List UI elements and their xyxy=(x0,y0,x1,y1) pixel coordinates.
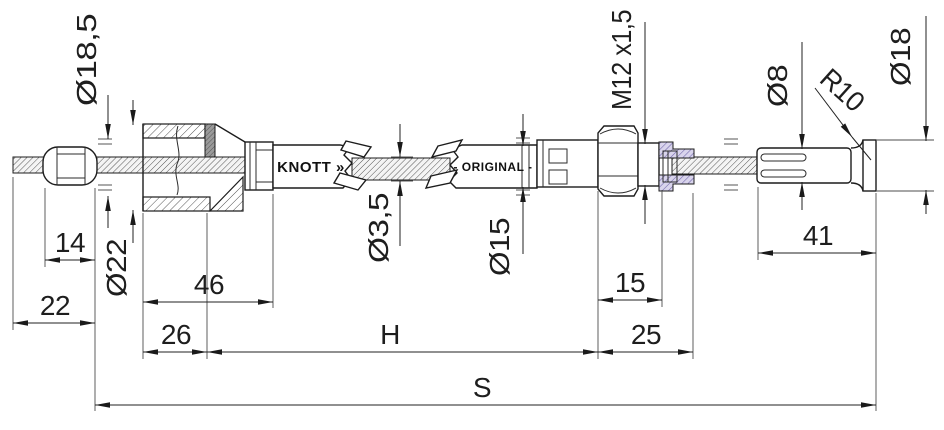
dim-label-46: 46 xyxy=(194,269,224,300)
dim-label-14: 14 xyxy=(55,227,85,258)
dim-label-41: 41 xyxy=(803,220,833,251)
dim-label-d22: Ø22 xyxy=(101,239,132,297)
dim-label-H: H xyxy=(380,319,400,350)
hex-nut xyxy=(598,126,638,196)
dim-label-d3-5: Ø3,5 xyxy=(363,193,394,263)
cable-end-nipple xyxy=(43,147,97,185)
dim-label-25: 25 xyxy=(631,319,661,350)
housing-cone-wall xyxy=(210,177,243,211)
nipple-body xyxy=(43,147,97,185)
dim-label-d18: Ø18 xyxy=(885,28,916,86)
dim-label-26: 26 xyxy=(161,319,191,350)
shaft-d8 xyxy=(757,148,851,183)
sheath-tear-flap-upper-left xyxy=(341,141,371,157)
knott-logo: KNOTT » xyxy=(277,159,345,176)
housing-cone-top-edge xyxy=(215,124,245,142)
housing-bottom-wall xyxy=(143,197,210,211)
dim-label-m12: M12 x1,5 xyxy=(606,10,637,110)
sheath-ferrule xyxy=(245,142,273,190)
dim-label-r10: R10 xyxy=(814,62,870,117)
cable-assembly: KNOTT » - ORIGINAL - xyxy=(13,124,876,211)
dim-label-22: 22 xyxy=(40,290,70,321)
dim-label-d15: Ø15 xyxy=(484,218,515,276)
housing-seal-band xyxy=(205,124,215,157)
hex-outline xyxy=(598,126,638,196)
end-fitting-mushroom xyxy=(757,140,876,191)
dim-label-d8: Ø8 xyxy=(762,65,793,107)
adjuster-sleeve xyxy=(537,140,598,187)
dim-label-d18-5: Ø18,5 xyxy=(71,14,102,106)
flare-top-r10 xyxy=(851,140,863,148)
ferrule-body xyxy=(245,142,273,190)
threaded-stud xyxy=(638,143,659,186)
original-print: - ORIGINAL - xyxy=(453,160,532,174)
cable-right-run xyxy=(672,157,760,174)
drawing-canvas: KNOTT » - ORIGINAL - xyxy=(0,0,944,430)
flare-bottom-r10 xyxy=(851,183,863,191)
technical-drawing-bowden-cable: KNOTT » - ORIGINAL - xyxy=(0,0,944,430)
head-d18 xyxy=(863,140,876,191)
dim-label-15: 15 xyxy=(615,267,645,298)
dim-label-S: S xyxy=(473,372,491,403)
housing-top-wall xyxy=(143,124,205,138)
